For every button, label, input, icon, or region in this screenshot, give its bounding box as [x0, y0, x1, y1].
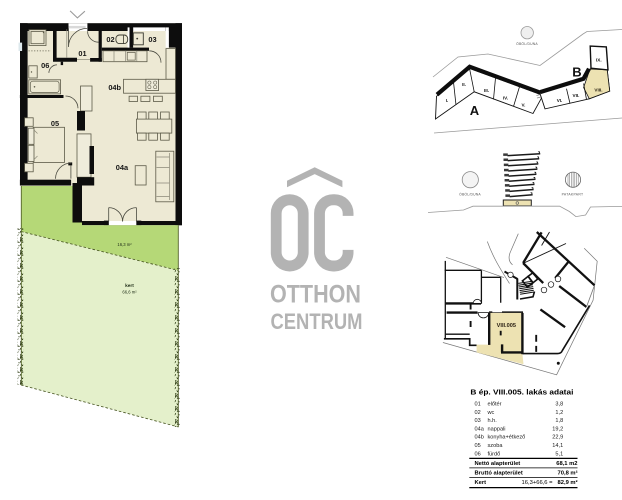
- svg-text:03: 03: [148, 35, 156, 44]
- svg-text:05: 05: [475, 443, 481, 449]
- svg-text:fürdő: fürdő: [488, 451, 501, 457]
- svg-text:Kert: Kert: [475, 480, 487, 486]
- svg-text:PATAKPART: PATAKPART: [562, 193, 584, 197]
- svg-text:VI.: VI.: [557, 98, 563, 103]
- svg-text:kert: kert: [125, 283, 134, 289]
- svg-text:III.: III.: [484, 88, 489, 93]
- svg-text:ÖBÖL/DUNA: ÖBÖL/DUNA: [516, 42, 538, 46]
- svg-text:04a: 04a: [116, 163, 129, 172]
- svg-text:14,1: 14,1: [552, 443, 563, 449]
- svg-text:szoba: szoba: [488, 443, 504, 449]
- svg-text:V.: V.: [522, 103, 526, 108]
- svg-text:01: 01: [475, 402, 481, 408]
- svg-text:5,1: 5,1: [555, 451, 563, 457]
- svg-text:wc: wc: [487, 410, 495, 416]
- svg-text:68,1 m2: 68,1 m2: [556, 461, 577, 467]
- svg-text:22,9: 22,9: [552, 435, 563, 441]
- svg-text:70,8 m²: 70,8 m²: [558, 470, 578, 477]
- svg-text:IV.: IV.: [503, 96, 508, 101]
- svg-text:06: 06: [475, 451, 481, 457]
- svg-text:II.: II.: [462, 82, 466, 87]
- svg-text:konyha+étkező: konyha+étkező: [488, 435, 526, 441]
- svg-text:82,9 m²: 82,9 m²: [558, 479, 578, 486]
- svg-text:3,8: 3,8: [555, 402, 563, 408]
- svg-text:02: 02: [475, 410, 481, 416]
- svg-text:A: A: [470, 103, 480, 118]
- svg-text:CENTRUM: CENTRUM: [271, 309, 363, 334]
- svg-text:04a: 04a: [475, 426, 485, 432]
- svg-text:1,2: 1,2: [555, 410, 563, 416]
- svg-text:Bruttó alapterület: Bruttó alapterület: [475, 471, 523, 477]
- svg-text:04b: 04b: [475, 435, 484, 441]
- svg-text:nappali: nappali: [488, 426, 506, 432]
- svg-text:05: 05: [51, 119, 59, 128]
- svg-text:1,8: 1,8: [555, 418, 563, 424]
- svg-text:66,6 m²: 66,6 m²: [122, 290, 137, 295]
- svg-text:16,3+66,6 =: 16,3+66,6 =: [522, 480, 554, 486]
- svg-text:OTTHON: OTTHON: [270, 281, 361, 308]
- svg-text:B: B: [572, 65, 581, 80]
- svg-text:16,3 m²: 16,3 m²: [117, 242, 132, 247]
- svg-text:előtér: előtér: [488, 402, 502, 408]
- svg-text:ÖBÖL/DUNA: ÖBÖL/DUNA: [459, 193, 481, 197]
- svg-text:VIII.: VIII.: [594, 88, 602, 93]
- svg-text:h.h.: h.h.: [488, 418, 498, 424]
- svg-text:02: 02: [106, 35, 114, 44]
- svg-text:06: 06: [41, 61, 49, 70]
- svg-text:03: 03: [475, 418, 481, 424]
- svg-text:01: 01: [78, 49, 86, 58]
- svg-text:04b: 04b: [108, 83, 121, 92]
- svg-text:19,2: 19,2: [552, 426, 563, 432]
- svg-text:I.: I.: [446, 98, 449, 103]
- svg-text:IX.: IX.: [596, 58, 602, 63]
- svg-text:Nettó alapterület: Nettó alapterület: [475, 461, 521, 467]
- svg-text:B ép. VIII.005. lakás adatai: B ép. VIII.005. lakás adatai: [470, 388, 573, 397]
- svg-text:VIII.005: VIII.005: [497, 323, 516, 329]
- svg-text:VII.: VII.: [573, 93, 580, 98]
